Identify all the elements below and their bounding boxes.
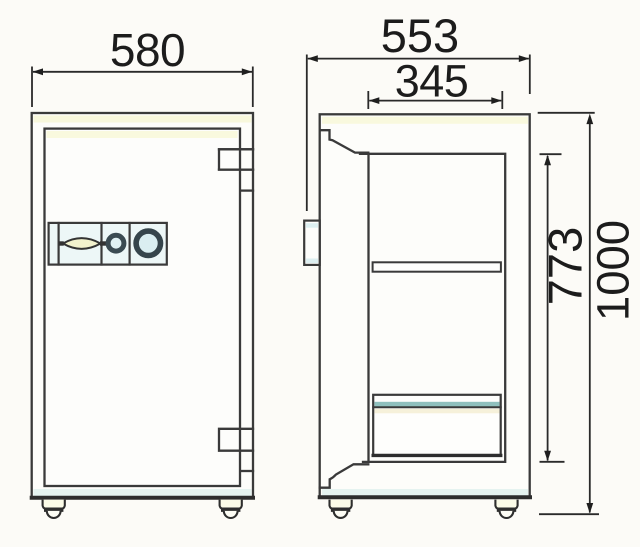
svg-text:553: 553	[381, 9, 459, 62]
svg-text:773: 773	[539, 227, 592, 305]
svg-text:580: 580	[110, 24, 185, 76]
svg-text:1000: 1000	[588, 220, 639, 321]
svg-text:345: 345	[395, 56, 469, 107]
